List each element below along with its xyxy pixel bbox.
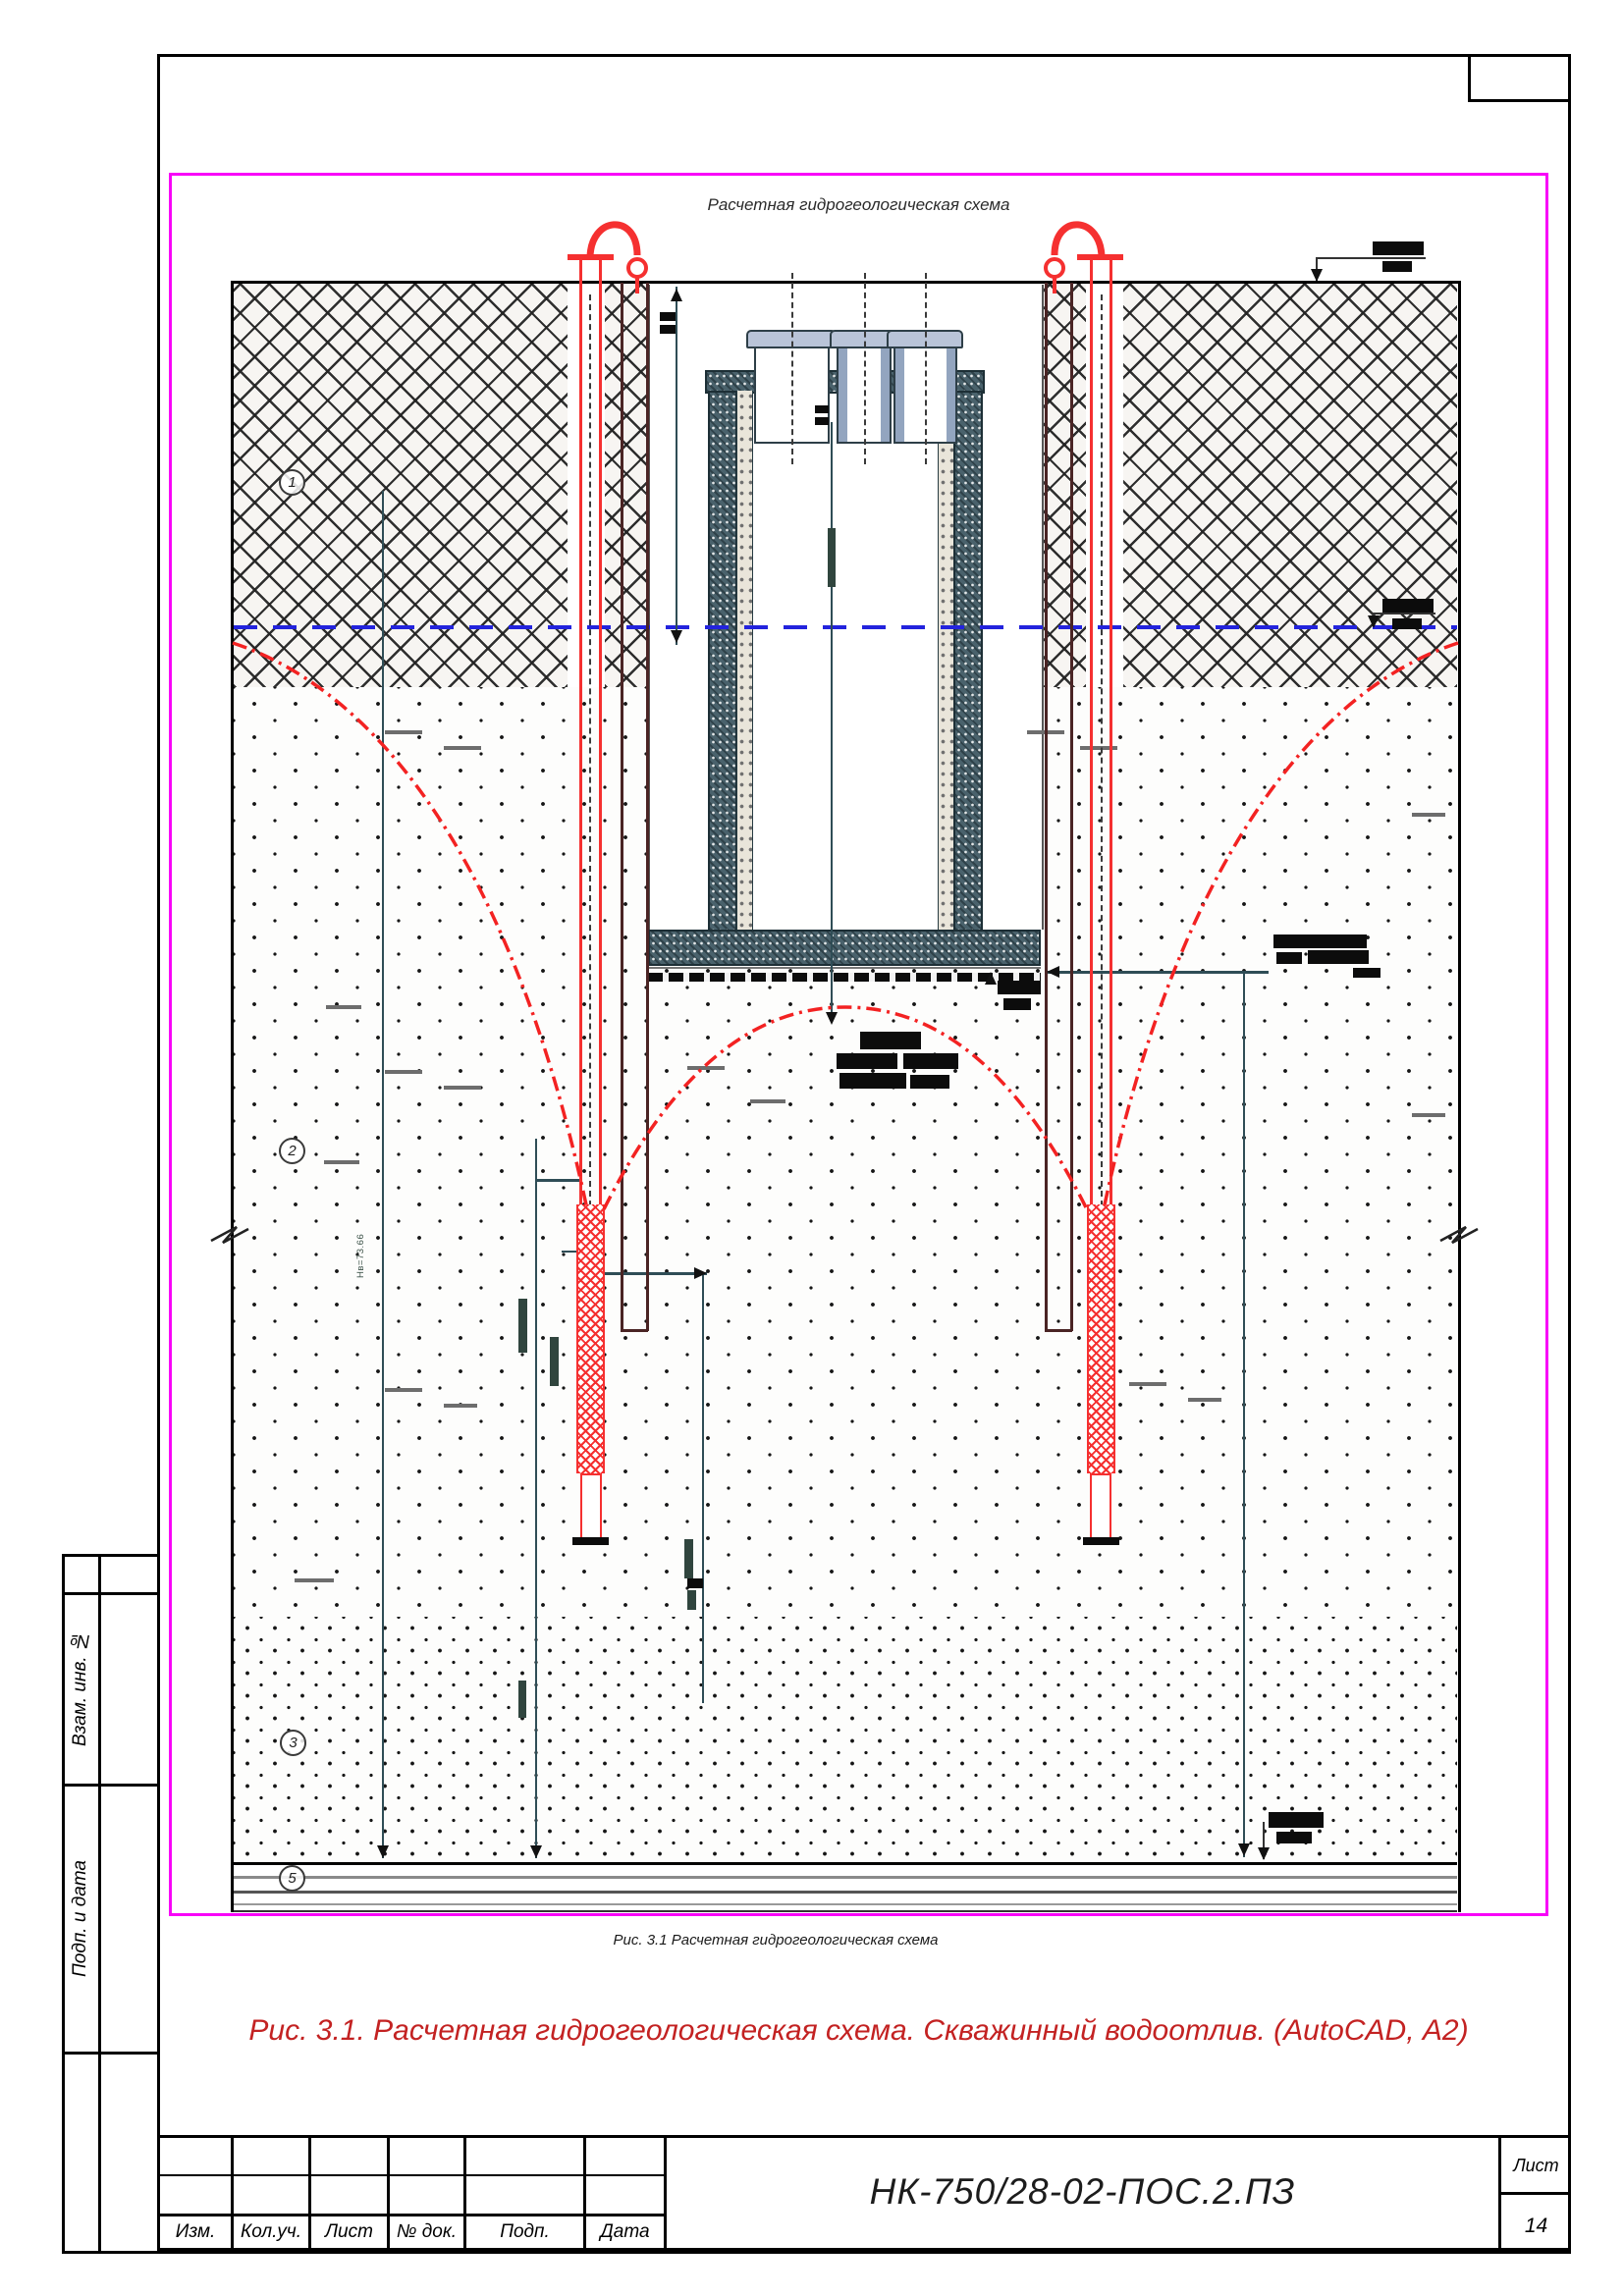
strata-dash xyxy=(1412,1113,1445,1117)
strata-dash xyxy=(326,1005,361,1009)
elevation-annotation-blob xyxy=(837,1053,897,1069)
strata-dash xyxy=(385,1070,422,1074)
sidebar-line xyxy=(62,2052,160,2055)
borehole-casing-left xyxy=(621,283,623,1331)
elevation-annotation-blob xyxy=(1382,599,1434,613)
dim-line xyxy=(676,287,677,645)
dim-text-blob xyxy=(815,417,829,425)
cylinder-centerline xyxy=(925,273,927,464)
layer5-line xyxy=(234,1891,1457,1894)
dim-line xyxy=(535,1179,580,1182)
layer5-line xyxy=(234,1910,1457,1912)
elevation-annotation-blob xyxy=(1003,998,1031,1010)
elevation-annotation-blob xyxy=(1276,1832,1312,1843)
strata-dash xyxy=(444,1086,481,1090)
layer5-line xyxy=(234,1862,1457,1865)
well-pipe-right xyxy=(1090,257,1093,1204)
water-table-line xyxy=(234,625,1457,629)
layer-number: 3 xyxy=(289,1735,297,1751)
cylinder-centerline xyxy=(791,273,793,464)
well-pipe-right xyxy=(1110,257,1112,1204)
strata-dash xyxy=(1129,1382,1166,1386)
dim-text-blob xyxy=(828,528,836,587)
dim-line xyxy=(535,1139,537,1858)
drawing-left-border xyxy=(231,281,234,1912)
shaft-liner-left xyxy=(736,391,753,932)
dim-text-blob xyxy=(660,312,676,321)
strata-dash xyxy=(444,1404,477,1408)
strata-dash xyxy=(295,1578,334,1582)
tb-line xyxy=(1498,2192,1571,2195)
strata-dash xyxy=(687,1066,725,1070)
layer-number: 2 xyxy=(288,1143,296,1159)
dim-text-blob xyxy=(687,1578,703,1588)
leader-line xyxy=(1263,1822,1265,1859)
elevation-annotation-blob xyxy=(910,1075,949,1089)
dim-line xyxy=(702,1273,704,1703)
layer-marker-1: 1 xyxy=(279,469,305,496)
tb-label-izm: Изм. xyxy=(157,2221,234,2243)
well-bottom-left xyxy=(572,1537,609,1545)
tb-label-podp: Подп. xyxy=(466,2221,583,2243)
borehole-casing-left xyxy=(646,283,649,1331)
sidebar-label-podp: Подп. и дата xyxy=(63,1789,98,2050)
strata-dash xyxy=(324,1160,359,1164)
dim-line xyxy=(1047,971,1269,974)
leader-line xyxy=(1373,613,1435,614)
document-page: Расчетная гидрогеологическая схема xyxy=(0,0,1624,2296)
dim-text-blob xyxy=(518,1681,526,1718)
figure-inner-caption: Рис. 3.1 Расчетная гидрогеологическая сх… xyxy=(285,1932,1267,1949)
layer-marker-5: 5 xyxy=(279,1865,305,1892)
borehole-casing-bottom xyxy=(1045,1329,1072,1332)
tb-label-data: Дата xyxy=(586,2221,664,2243)
tb-label-koluch: Кол.уч. xyxy=(234,2221,308,2243)
strata-dash xyxy=(444,746,481,750)
tb-label-list: Лист xyxy=(311,2221,387,2243)
dim-line xyxy=(382,491,384,1858)
slab-underline xyxy=(648,967,1041,969)
layer5-line xyxy=(234,1876,1457,1879)
ground-line xyxy=(231,281,1460,284)
layer-number: 1 xyxy=(288,474,296,491)
figure-caption: Рис. 3.1. Расчетная гидрогеологическая с… xyxy=(169,2014,1548,2048)
water-head-label: Нв=73.66 xyxy=(355,1217,366,1278)
well-sump-left xyxy=(580,1473,602,1543)
sidebar-label-vzam: Взам. инв. № xyxy=(63,1595,98,1782)
leader-line xyxy=(1373,613,1375,626)
well-bottom-right xyxy=(1083,1537,1119,1545)
shaft-wall-left xyxy=(708,391,737,932)
elevation-annotation-blob xyxy=(903,1053,958,1069)
sidebar-label-text: Взам. инв. № xyxy=(70,1630,91,1746)
elevation-annotation-blob xyxy=(1353,968,1380,978)
well-sump-right xyxy=(1090,1473,1111,1543)
cylinder-centerline xyxy=(864,273,866,464)
dim-text-blob xyxy=(518,1299,527,1353)
wellhead-left xyxy=(568,254,614,260)
well-screen-left xyxy=(576,1204,605,1473)
shaft-bottom-slab xyxy=(648,930,1041,966)
dim-text-blob xyxy=(687,1590,696,1610)
dim-text-blob xyxy=(550,1337,559,1386)
shaft-liner-right xyxy=(938,391,954,932)
sheet-label: Лист xyxy=(1501,2156,1571,2176)
elevation-annotation-blob xyxy=(1382,261,1412,272)
wellhead-right xyxy=(1077,254,1123,260)
elevation-annotation-blob xyxy=(1308,950,1369,964)
dim-line xyxy=(1243,974,1245,1857)
tb-label-ndok: № док. xyxy=(390,2221,463,2243)
blast-strip xyxy=(648,973,1041,982)
corner-box xyxy=(1468,54,1571,102)
tb-line xyxy=(157,2174,667,2176)
leader-line xyxy=(1316,257,1318,281)
elevation-annotation-blob xyxy=(1373,241,1424,255)
borehole-casing-right xyxy=(1045,283,1048,1331)
elevation-annotation-blob xyxy=(1273,934,1367,948)
well-screen-right xyxy=(1087,1204,1115,1473)
sidebar-line xyxy=(62,1784,160,1787)
layer5-line xyxy=(234,1903,1457,1905)
sidebar-label-text: Подп. и дата xyxy=(70,1861,91,1978)
shaft-wall-right xyxy=(953,391,983,932)
dim-text-blob xyxy=(684,1539,693,1578)
layer-marker-3: 3 xyxy=(280,1730,306,1756)
figure-title: Расчетная гидрогеологическая схема xyxy=(169,195,1548,215)
sidebar-divider xyxy=(98,1554,101,2254)
sheet-number: 14 xyxy=(1501,2215,1571,2238)
elevation-annotation-blob xyxy=(860,1032,921,1049)
pit-wall-line xyxy=(1042,285,1044,930)
strata-dash xyxy=(1412,813,1445,817)
well-pipe-left xyxy=(579,257,582,1204)
elevation-annotation-blob xyxy=(1269,1812,1324,1828)
elevation-annotation-blob xyxy=(998,981,1041,994)
elevation-annotation-blob xyxy=(839,1073,906,1089)
borehole-casing-bottom xyxy=(621,1329,648,1332)
dim-text-blob xyxy=(815,405,829,413)
document-number: НК-750/28-02-ПОС.2.ПЗ xyxy=(667,2171,1498,2213)
elevation-annotation-blob xyxy=(1276,952,1302,964)
dim-text-blob xyxy=(660,325,676,334)
layer-marker-2: 2 xyxy=(279,1138,305,1164)
layer-number: 5 xyxy=(288,1870,296,1887)
dim-line xyxy=(831,422,833,1023)
tb-line xyxy=(157,2214,667,2216)
dim-line xyxy=(601,1272,707,1275)
shaft-interior xyxy=(752,393,939,930)
strata-dash xyxy=(385,730,422,734)
strata-dash xyxy=(1188,1398,1221,1402)
drawing-right-border xyxy=(1458,281,1461,1912)
strata-dash xyxy=(385,1388,422,1392)
well-pipe-left xyxy=(599,257,602,1204)
elevation-annotation-blob xyxy=(1392,618,1422,629)
leader-line xyxy=(1316,257,1426,259)
borehole-casing-right xyxy=(1070,283,1073,1331)
strata-dash xyxy=(750,1099,785,1103)
